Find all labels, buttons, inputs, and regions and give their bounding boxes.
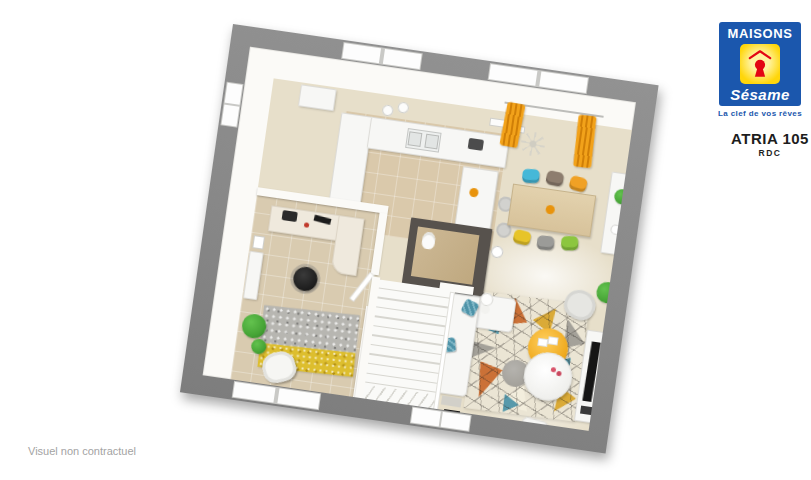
picture-frame [252,235,265,249]
rug-pattern [468,361,503,402]
floorplan-3d-render [180,24,659,454]
dining-chair-cyan [522,169,540,184]
maisons-sesame-logo: MAISONS Sésame [719,22,801,106]
dining-chair-green [561,236,578,250]
wc-floor [411,226,479,284]
keyhole-icon [743,47,777,81]
magazine [549,337,558,344]
keyhole-badge [740,44,780,84]
plan-title: ATRIA 105 [705,130,811,147]
plan-title-block: ATRIA 105 RDC [705,130,811,158]
logo-tagline: La clef de vos rêves [705,109,811,118]
disclaimer-text: Visuel non contractuel [28,445,136,457]
printer [282,210,298,222]
interior-area [203,47,636,431]
plan-floor-label: RDC [705,148,811,158]
dining-chair-gray [536,235,554,250]
logo-sesame-text: Sésame [730,87,790,102]
logo-maisons-text: MAISONS [728,27,793,40]
magazine [538,339,547,346]
rug-pattern [496,390,519,412]
kitchen-hob [468,138,484,151]
